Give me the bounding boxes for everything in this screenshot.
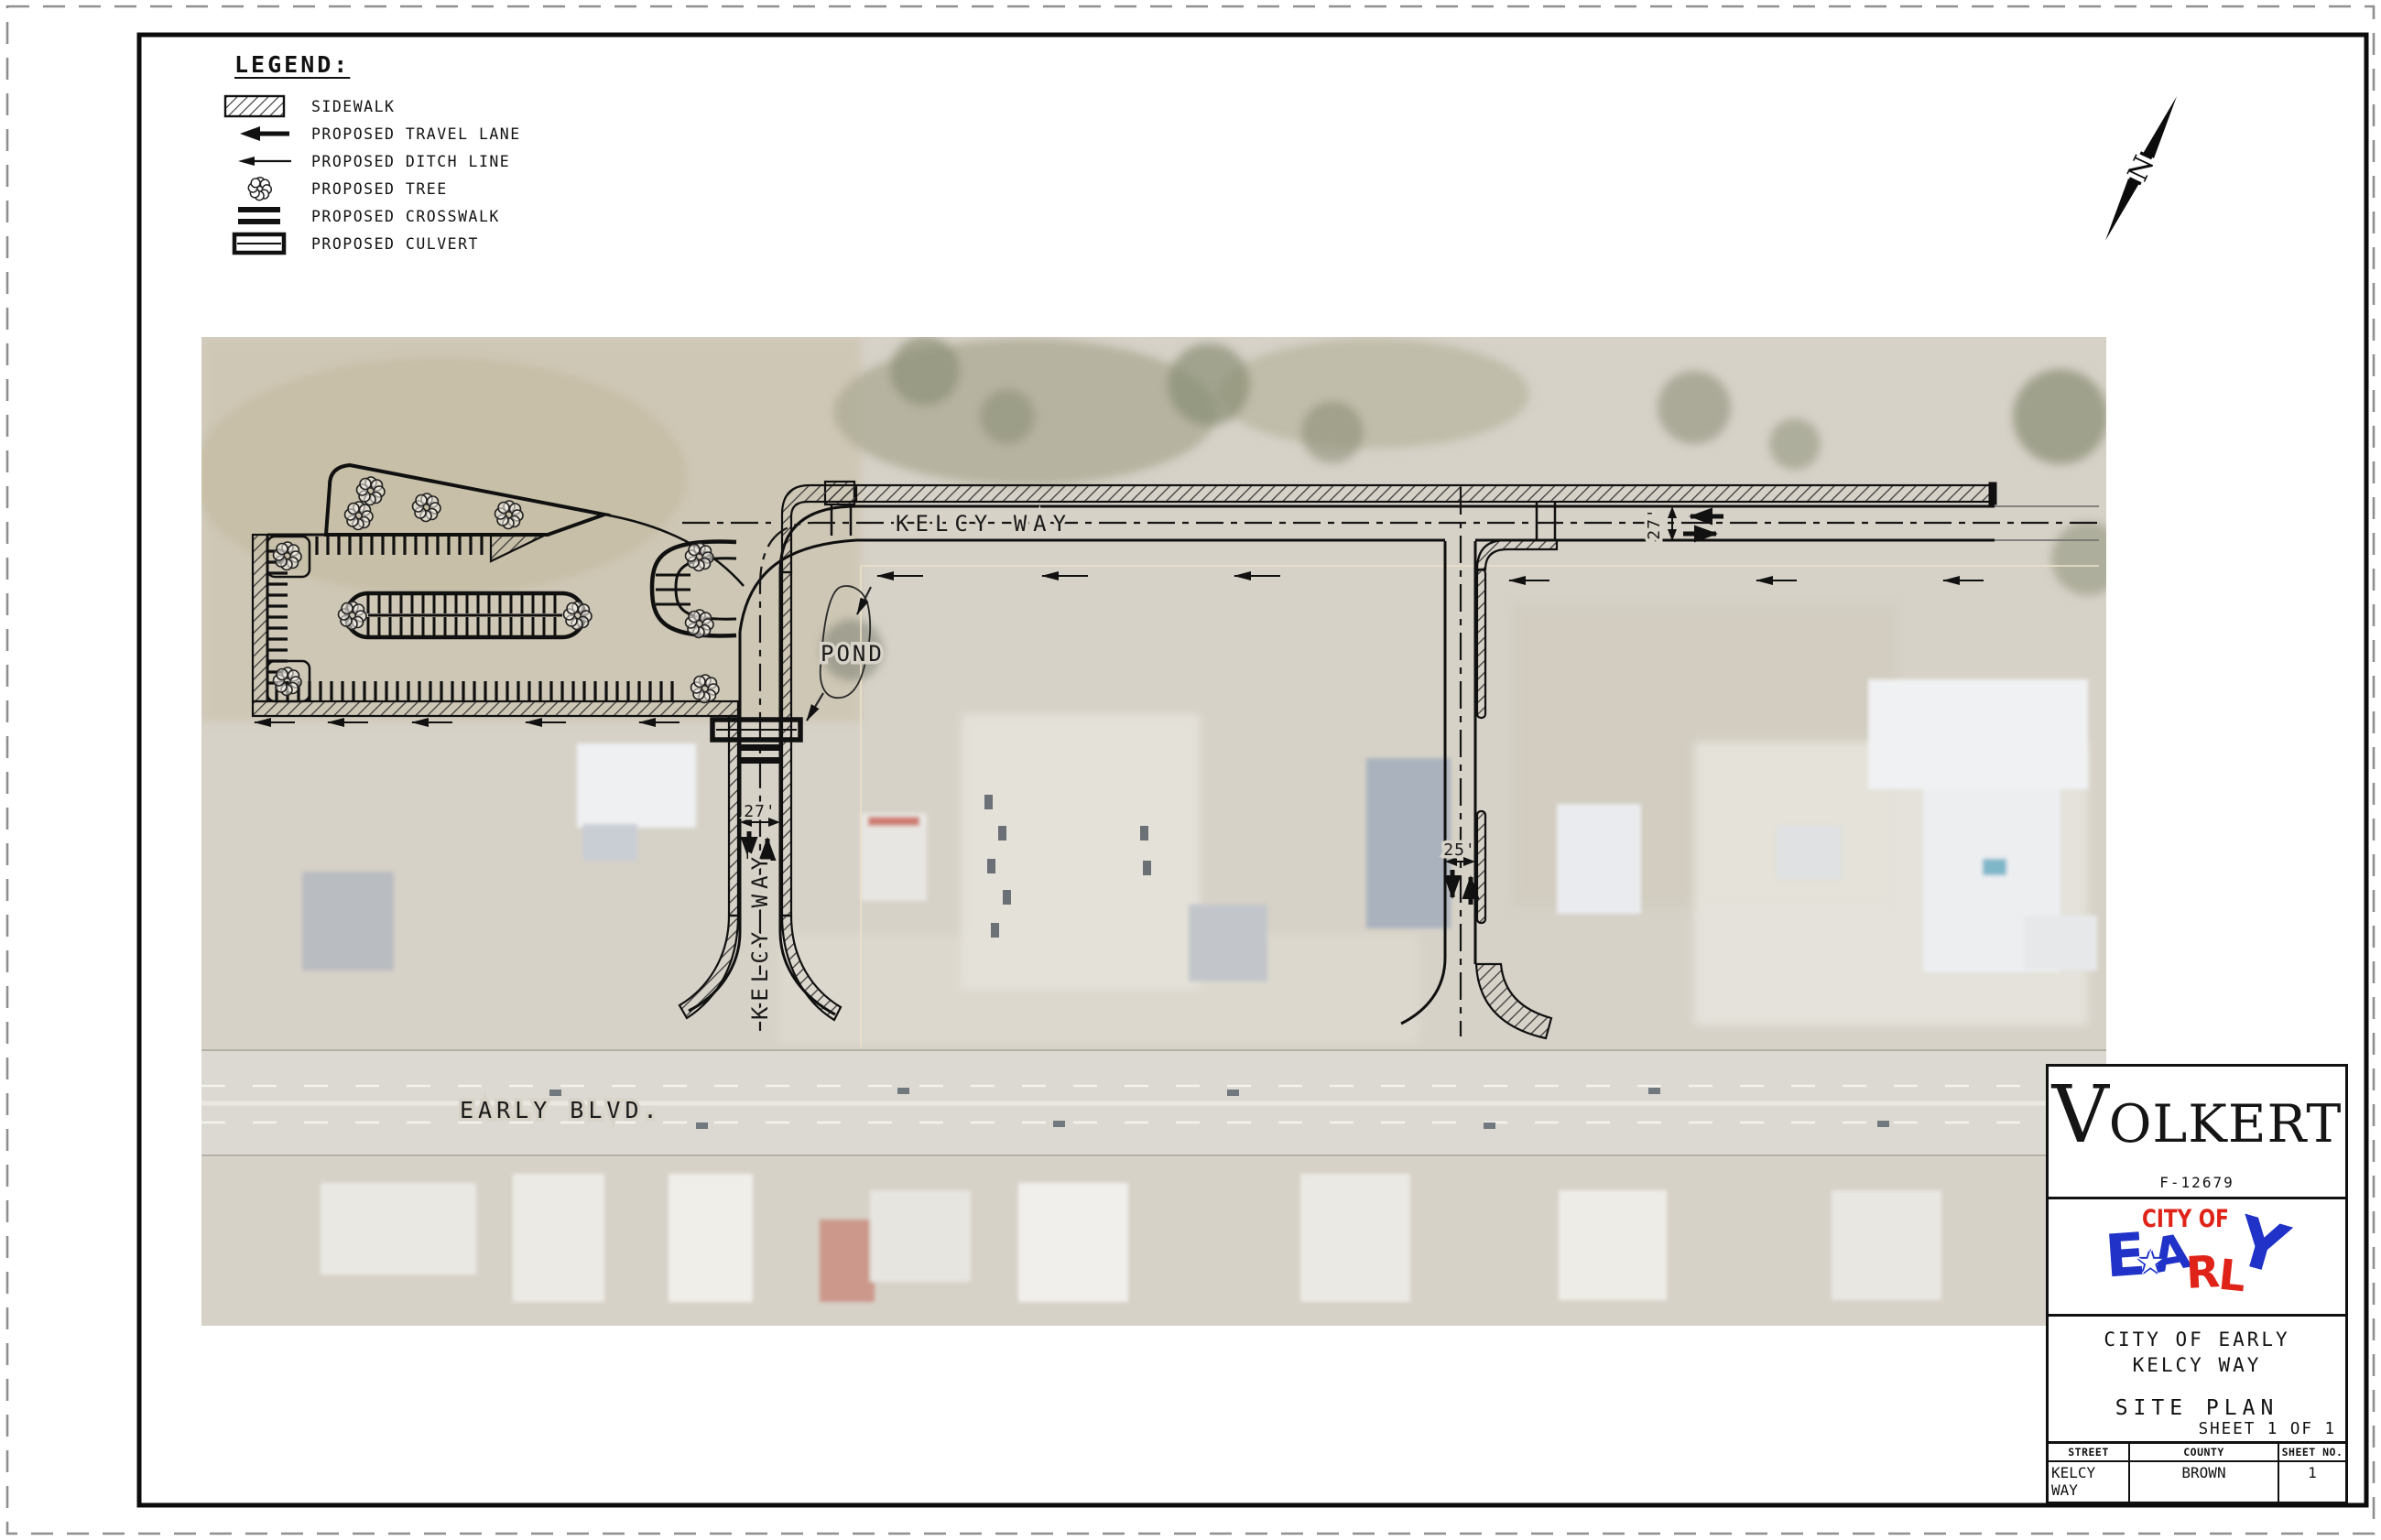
dim-27-top: 27'	[1645, 507, 1664, 540]
crosswalk-bars-icon	[209, 203, 311, 229]
legend-item-crosswalk: PROPOSED CROSSWALK	[209, 202, 593, 230]
label-early-blvd: EARLY BLVD.	[460, 1097, 662, 1123]
legend-title: LEGEND:	[234, 51, 593, 78]
travel-lane-arrow-icon	[209, 121, 311, 146]
dim-25-right: 25'	[1443, 840, 1476, 860]
sidewalk-swatch-icon	[209, 93, 311, 119]
legend-item-travel-lane: PROPOSED TRAVEL LANE	[209, 120, 593, 147]
legend-label: SIDEWALK	[311, 98, 395, 115]
legend: LEGEND: SIDEWALK PROPOSED TRAVEL LANE PR…	[209, 51, 593, 257]
title-block: VOLKERT F-12679 CITY OF E A ★ R L Y CITY…	[2046, 1064, 2348, 1504]
legend-item-culvert: PROPOSED CULVERT	[209, 230, 593, 257]
culvert-symbol-icon	[209, 231, 311, 256]
title-block-table: STREET COUNTY SHEET NO. KELCY WAY BROWN …	[2049, 1441, 2345, 1502]
city-logo-letter-y: Y	[2229, 1207, 2295, 1285]
label-pond: POND	[821, 641, 885, 667]
project-line2: KELCY WAY	[2049, 1353, 2345, 1378]
label-kelcy-way-top: KELCY WAY	[896, 511, 1072, 537]
table-value-street: KELCY WAY	[2049, 1462, 2130, 1502]
legend-item-ditch-line: PROPOSED DITCH LINE	[209, 147, 593, 175]
table-header-county: COUNTY	[2130, 1444, 2279, 1462]
volkert-logo: VOLKERT	[2052, 1076, 2343, 1155]
city-logo-panel: CITY OF E A ★ R L Y	[2049, 1199, 2345, 1318]
legend-item-tree: PROPOSED TREE	[209, 175, 593, 202]
legend-label: PROPOSED TRAVEL LANE	[311, 125, 521, 143]
legend-item-sidewalk: SIDEWALK	[209, 92, 593, 120]
table-value-sheetno: 1	[2279, 1462, 2345, 1502]
tree-symbol-icon	[209, 176, 311, 201]
project-panel: CITY OF EARLY KELCY WAY SITE PLAN SHEET …	[2049, 1317, 2345, 1502]
city-logo-star-icon: ★	[2136, 1247, 2164, 1278]
legend-label: PROPOSED CROSSWALK	[311, 208, 500, 225]
legend-label: PROPOSED TREE	[311, 180, 448, 198]
project-line1: CITY OF EARLY	[2049, 1328, 2345, 1352]
table-header-sheetno: SHEET NO.	[2279, 1444, 2345, 1462]
sheet-title: SITE PLAN	[2049, 1396, 2345, 1420]
city-logo-letter-r: R	[2185, 1250, 2221, 1296]
north-arrow: N	[2093, 89, 2190, 248]
dim-27-left: 27'	[744, 802, 777, 821]
legend-label: PROPOSED CULVERT	[311, 235, 479, 253]
table-header-street: STREET	[2049, 1444, 2130, 1462]
legend-label: PROPOSED DITCH LINE	[311, 153, 510, 170]
firm-panel: VOLKERT F-12679	[2049, 1067, 2345, 1199]
ditch-line-arrow-icon	[209, 148, 311, 174]
sidewalk-end-cap	[1989, 483, 1996, 504]
firm-registration: F-12679	[2159, 1174, 2234, 1191]
label-kelcy-way-left: KELCY WAY	[747, 851, 773, 1020]
table-value-county: BROWN	[2130, 1462, 2279, 1502]
volkert-logo-rest: OLKERT	[2109, 1094, 2343, 1155]
volkert-logo-v: V	[2052, 1069, 2109, 1161]
sheet-count: SHEET 1 OF 1	[2049, 1420, 2336, 1438]
